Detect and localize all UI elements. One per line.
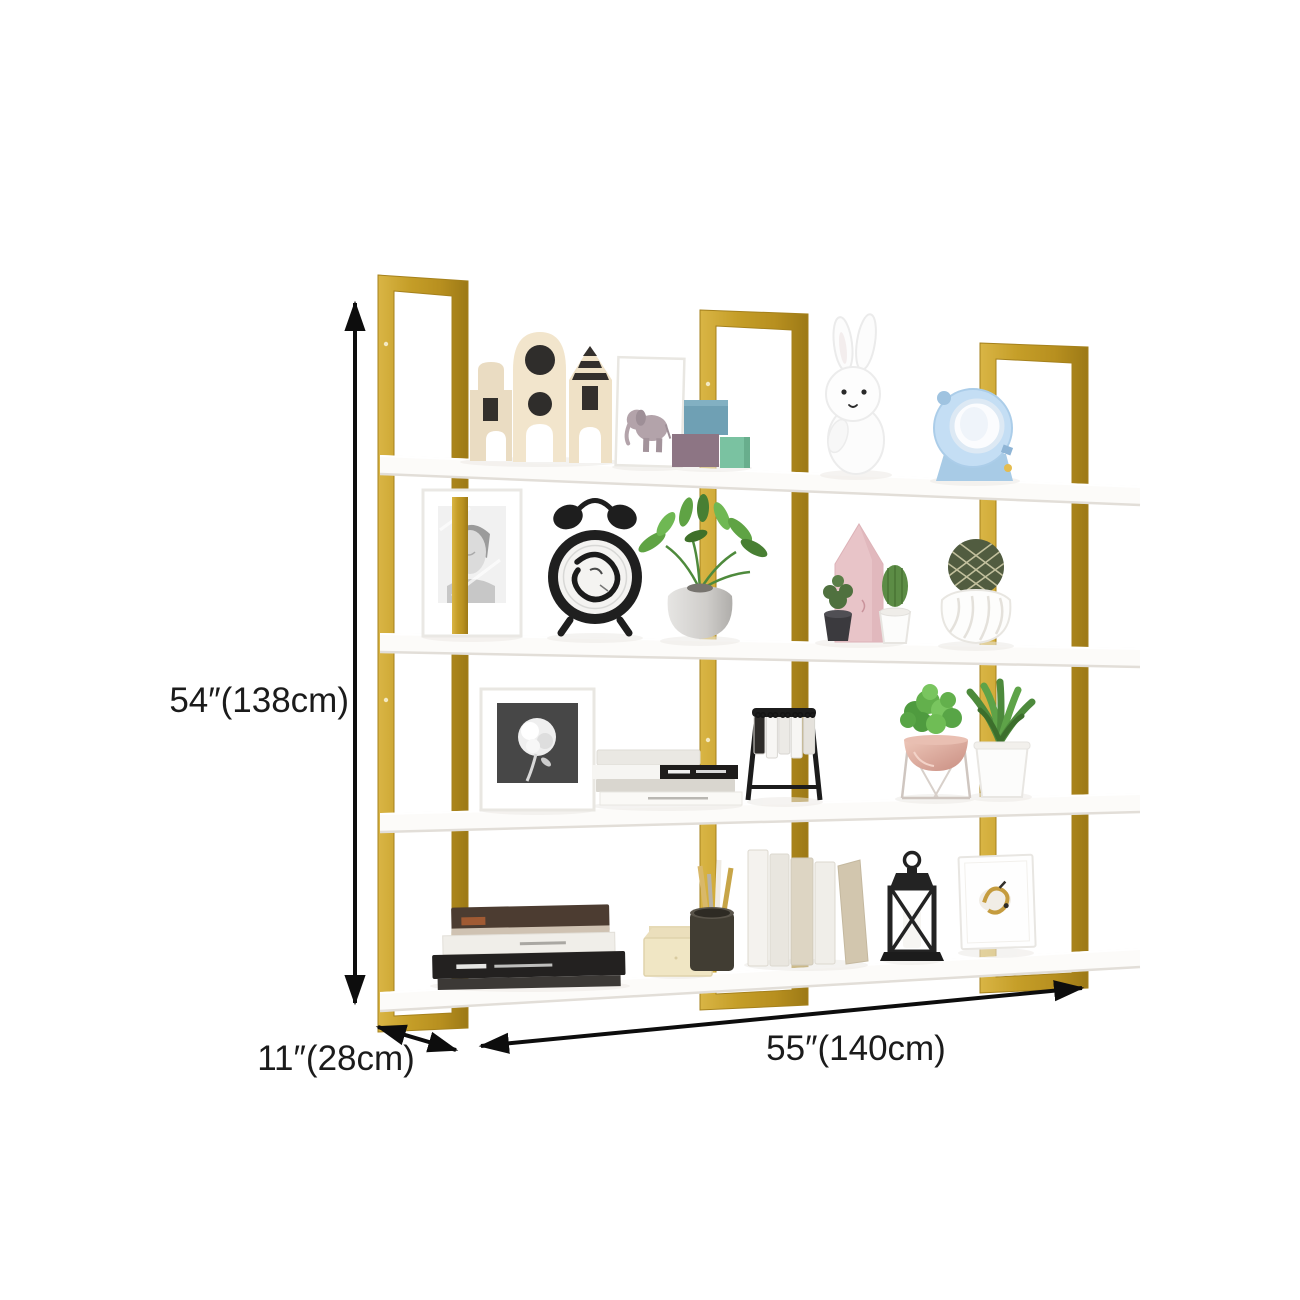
rose-art-frame (481, 689, 594, 810)
blue-toy-camera (934, 389, 1013, 481)
black-alarm-clock (548, 501, 642, 634)
shelf-1-items (470, 313, 1013, 481)
canvas-art-print (958, 855, 1035, 950)
cactus-ball-in-swirl-vase (942, 539, 1011, 643)
portrait-photo-frame (423, 490, 521, 636)
standing-books (748, 850, 868, 966)
shelf-3-items (481, 682, 1032, 810)
flip-card-calendar (748, 708, 820, 800)
frame-left-post-overlay (452, 497, 468, 634)
bookshelf-scene: 54″(138cm) 11″(28cm) 55″(140cm) (0, 0, 1300, 1300)
black-candle-lantern (880, 853, 944, 962)
height-label: 54″(138cm) (169, 681, 349, 720)
toy-house-blocks (470, 332, 612, 463)
stacked-books (592, 750, 742, 805)
product-dimension-diagram: 54″(138cm) 11″(28cm) 55″(140cm) (0, 0, 1300, 1300)
width-label: 55″(140cm) (766, 1029, 946, 1068)
shelf-2-items (423, 490, 1010, 643)
plant-in-copper-bowl-stand (900, 684, 970, 798)
pile-of-books (431, 904, 626, 990)
succulent-in-white-pot (970, 682, 1032, 797)
bunny-figurine (824, 313, 884, 474)
white-cactus-pot (880, 565, 910, 643)
depth-label: 11″(28cm) (257, 1039, 415, 1078)
